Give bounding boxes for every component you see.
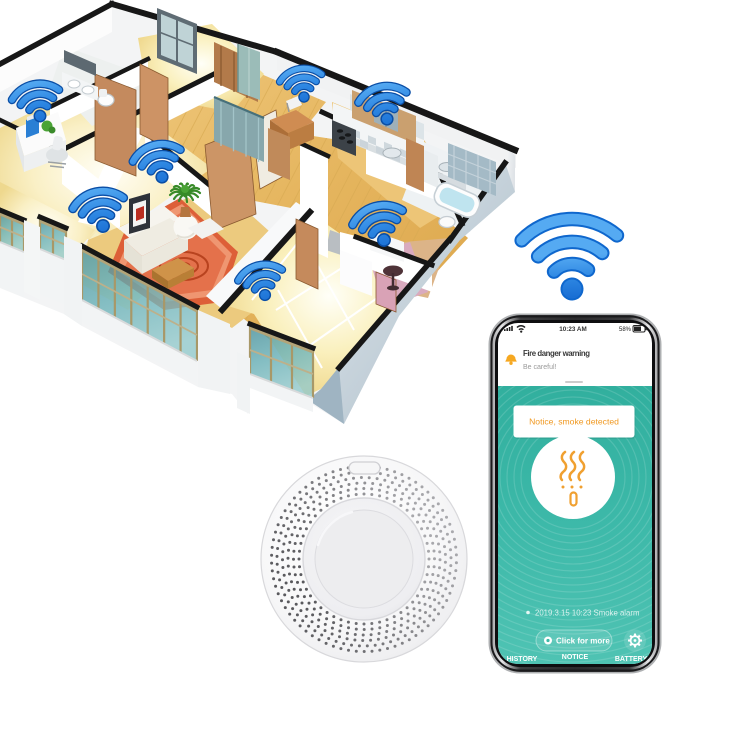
svg-text:Click for more: Click for more <box>556 637 610 646</box>
svg-text:10:23 AM: 10:23 AM <box>559 326 586 333</box>
svg-text:Fire danger warning: Fire danger warning <box>523 349 590 358</box>
svg-text:Be careful!: Be careful! <box>523 364 557 371</box>
svg-text:2019.3.15 10:23 Smoke alarm: 2019.3.15 10:23 Smoke alarm <box>535 609 639 618</box>
svg-text:Notice, smoke detected: Notice, smoke detected <box>529 417 619 427</box>
svg-text:58%: 58% <box>619 327 632 333</box>
svg-text:HISTORY: HISTORY <box>507 656 538 663</box>
svg-text:NOTICE: NOTICE <box>562 654 589 661</box>
